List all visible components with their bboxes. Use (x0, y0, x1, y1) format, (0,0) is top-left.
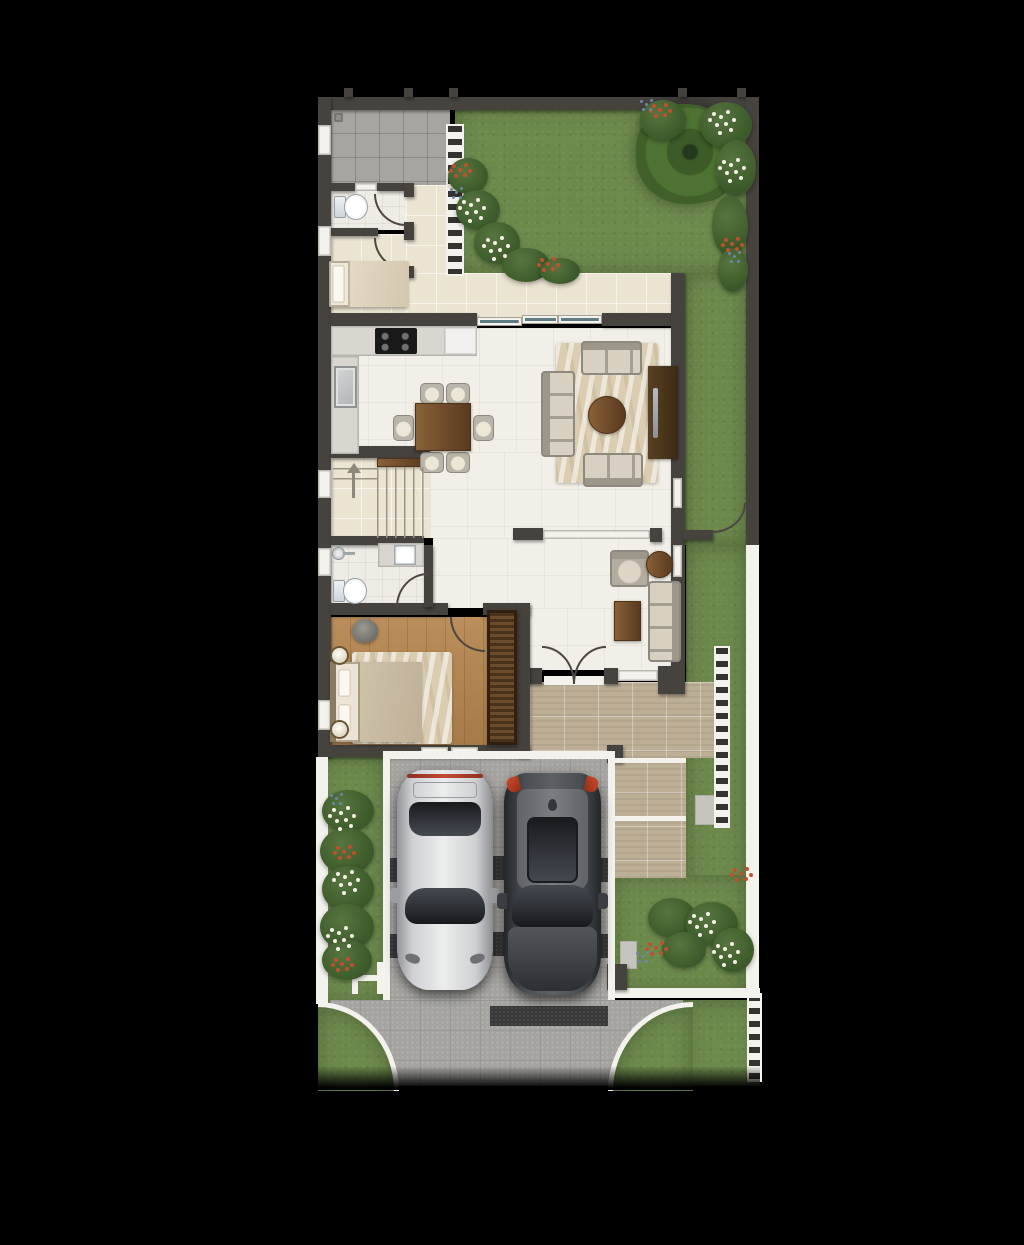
flowers-red (733, 868, 737, 872)
foyer-armchair (610, 550, 649, 587)
wall-living-north (602, 313, 671, 326)
bath-toilet (333, 576, 367, 604)
coffee-table-round (588, 396, 626, 434)
street-fade (316, 1066, 760, 1090)
wall-foyer-corner (658, 666, 685, 694)
charcoal-suv-sunroof (527, 817, 578, 883)
flowers-white (462, 200, 466, 204)
shrub (700, 102, 752, 148)
dining-chair (473, 415, 494, 441)
kerb-right (608, 759, 615, 1000)
flowers-red (652, 104, 656, 108)
shrub (712, 196, 748, 256)
flowers-red (334, 958, 338, 962)
wall-serviceyard-south (331, 183, 355, 191)
charcoal-suv-mirror (598, 893, 608, 909)
bed-pillow (338, 669, 351, 697)
flowers-blue (640, 100, 643, 103)
window-kitchen (522, 315, 558, 324)
charcoal-suv-antenna (548, 799, 557, 811)
silver-coupe-mirror (390, 888, 400, 903)
flowers-white (692, 914, 696, 918)
wall-post (737, 88, 746, 97)
tv-screen (653, 388, 658, 438)
flowers-red (540, 258, 544, 262)
charcoal-suv-mirror (497, 893, 507, 909)
trellis-deck (716, 648, 728, 826)
deck-side-pad (695, 795, 718, 825)
shrub (640, 100, 686, 140)
window-west (318, 548, 331, 576)
maid-bed-pillow (332, 265, 345, 303)
wardrobe (487, 610, 517, 745)
charcoal-suv-windshield (512, 885, 593, 927)
wall-bedroom-east (517, 603, 530, 757)
hob-icon (375, 328, 417, 354)
window-west (318, 125, 331, 155)
silver-coupe-windshield (405, 888, 485, 924)
wall-living-foyer (650, 528, 662, 542)
loveseat-south (583, 453, 643, 487)
flowers-blue (330, 794, 333, 797)
foyer-coffee-table (614, 601, 641, 641)
foyer-settee (648, 581, 681, 662)
kerb-left (383, 759, 390, 1000)
service-yard-floor (331, 109, 450, 185)
flowers-blue (728, 252, 731, 255)
shrub (718, 248, 748, 292)
flowers-blue (636, 952, 639, 955)
fence-front-right (613, 988, 760, 998)
wall-post (449, 88, 458, 97)
maid-bed-blanket (348, 261, 409, 307)
dining-chair (393, 415, 414, 441)
walkway-step-edge (613, 758, 686, 763)
window-west (318, 470, 331, 498)
shower-arm (343, 552, 355, 555)
silver-coupe-rear-glass (409, 802, 481, 836)
wall-post (404, 88, 413, 97)
walkway-step-edge (613, 816, 686, 821)
window-foyer-south (618, 670, 658, 681)
drive-accent-band-wide (490, 1006, 608, 1026)
sofa-three-seat (541, 371, 575, 457)
bedroom-stool (352, 619, 378, 643)
dining-chair (446, 452, 470, 473)
flowers-white (716, 944, 720, 948)
wall-post (344, 88, 353, 97)
stair-up-arrow-head (347, 463, 361, 473)
bed-blanket (358, 662, 422, 742)
wall-wc-maid (331, 228, 378, 236)
porch-step-strip (383, 751, 615, 759)
wall-living-foyer (513, 528, 543, 540)
window-kitchen (477, 317, 522, 326)
wall-side-gate-stub (683, 530, 713, 540)
foyer-side-table (646, 551, 673, 578)
corridor-floor-horizontal (406, 273, 671, 317)
flowers-red (648, 942, 652, 946)
stair-up-arrow-stem (352, 472, 355, 498)
dining-chair (420, 383, 444, 404)
shrub (716, 140, 756, 196)
window-kitchen (558, 315, 602, 324)
wall-serviceyard-south (377, 183, 406, 191)
terrace-deck (530, 682, 718, 758)
floor-drain (334, 113, 343, 122)
door-sill (355, 183, 377, 191)
silver-coupe (397, 770, 493, 990)
bath-vanity-sink (394, 545, 416, 565)
kitchen-sink (334, 366, 357, 408)
flowers-white (486, 238, 490, 242)
flowers-red (452, 164, 456, 168)
wall-post (678, 88, 687, 97)
wall-west (318, 97, 331, 757)
window-west (318, 226, 331, 256)
flowers-white (336, 872, 340, 876)
dining-chair (446, 383, 470, 404)
stair-treads-right (377, 467, 430, 538)
wall-foyer-south (604, 668, 618, 684)
dining-table (415, 403, 471, 451)
bedside-lamp (332, 722, 347, 737)
shrub-left-strip (322, 940, 372, 980)
shrub-band (540, 258, 580, 284)
flowers-white (712, 112, 716, 116)
silver-coupe-taillight (407, 774, 483, 778)
window-foyer-east (673, 545, 682, 577)
loveseat-north (581, 341, 642, 375)
flowers-white (330, 928, 334, 932)
counter-appliance (444, 327, 477, 355)
shrub-front-right (712, 928, 754, 972)
flowers-blue (450, 188, 453, 191)
window-living-east (673, 478, 682, 508)
flowers-white (332, 808, 336, 812)
wc-toilet (334, 192, 368, 220)
maid-bed (329, 261, 407, 307)
floor-plan-canvas (0, 0, 1024, 1245)
charcoal-suv (504, 773, 601, 995)
wall-kitchen-north (331, 313, 477, 326)
window-living-foyer (543, 530, 650, 539)
shrub-front-right (662, 932, 706, 968)
silver-coupe-rear-vents (413, 782, 477, 798)
fence-east-white (746, 545, 759, 995)
flowers-white (722, 160, 726, 164)
bedside-lamp (332, 648, 347, 663)
flowers-red (724, 238, 728, 242)
flowers-red (336, 846, 340, 850)
charcoal-suv-hood (508, 927, 597, 991)
